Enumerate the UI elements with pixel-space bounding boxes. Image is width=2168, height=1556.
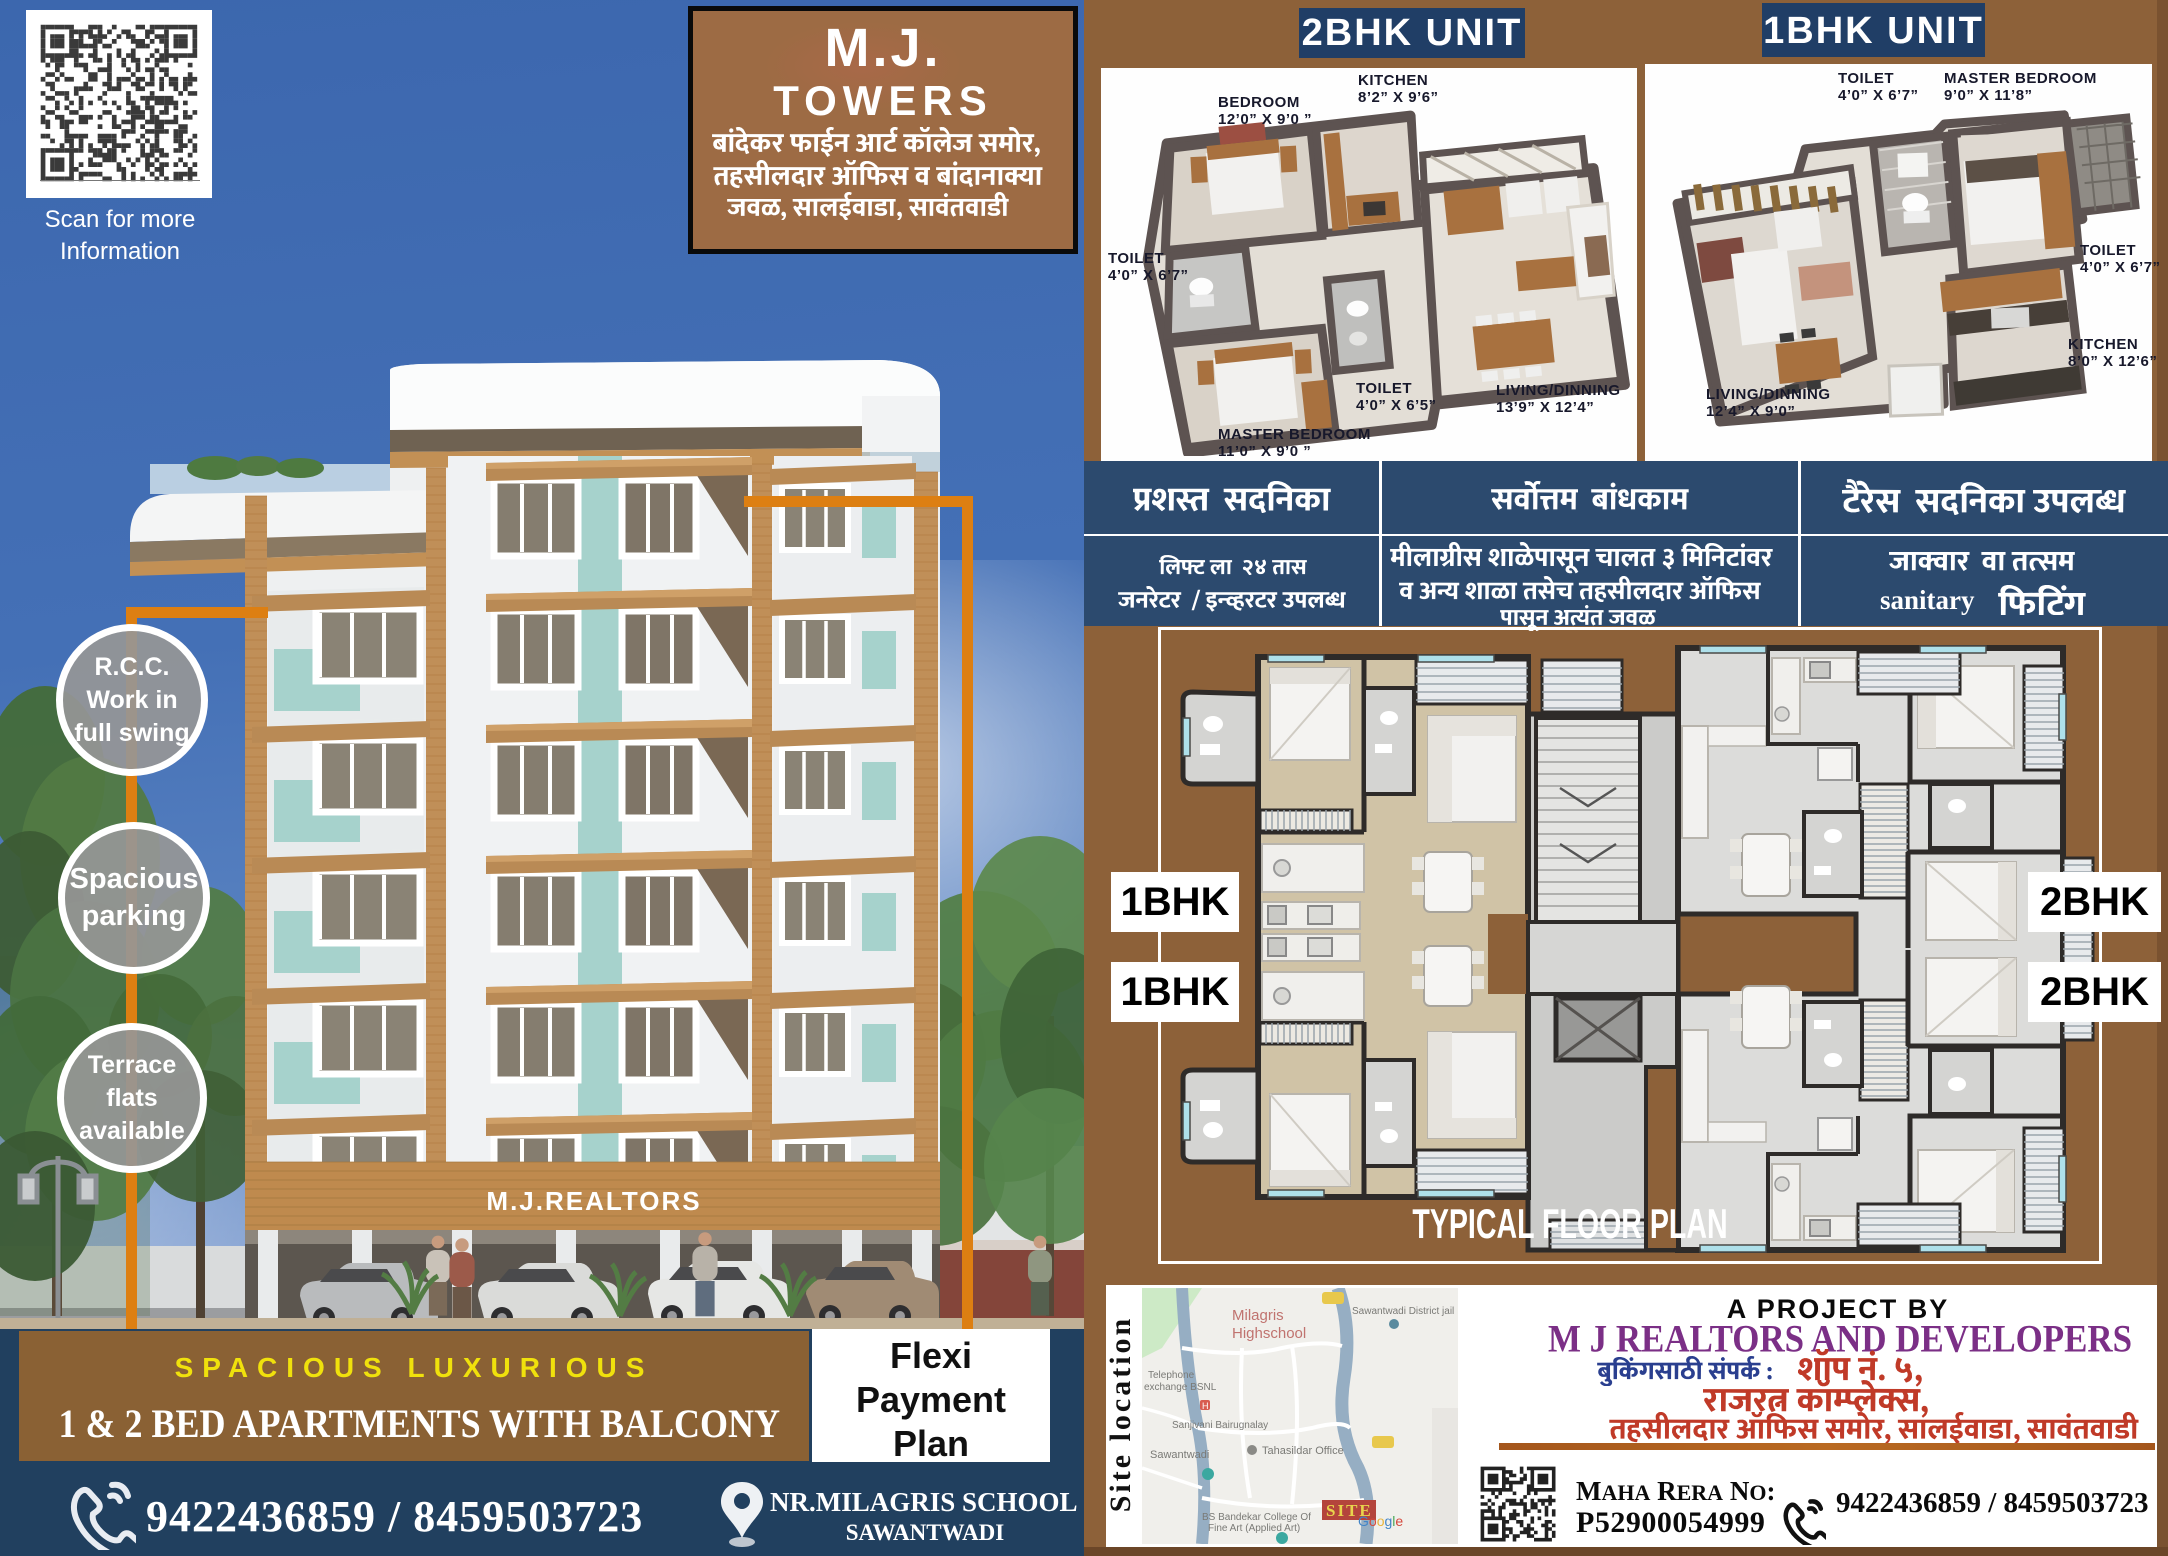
svg-text:M.J.REALTORS: M.J.REALTORS [486,1186,701,1216]
svg-text:BS Bandekar College Of: BS Bandekar College Of [1202,1512,1311,1523]
svg-text:Milagris: Milagris [1232,1307,1284,1324]
svg-text:Highschool: Highschool [1232,1325,1306,1342]
svg-text:exchange BSNL: exchange BSNL [1144,1382,1217,1393]
svg-text:Tahasildar Office: Tahasildar Office [1262,1445,1344,1457]
svg-text:Google: Google [1358,1513,1403,1529]
svg-text:Telephone: Telephone [1148,1370,1195,1381]
svg-text:Sawantwadi District jail: Sawantwadi District jail [1352,1306,1454,1317]
svg-text:Sawantwadi: Sawantwadi [1150,1449,1209,1461]
svg-text:Fine Art (Applied Art): Fine Art (Applied Art) [1208,1523,1300,1534]
svg-text:H: H [1202,1401,1209,1411]
svg-text:Sanjivani Bairugnalay: Sanjivani Bairugnalay [1172,1420,1268,1431]
